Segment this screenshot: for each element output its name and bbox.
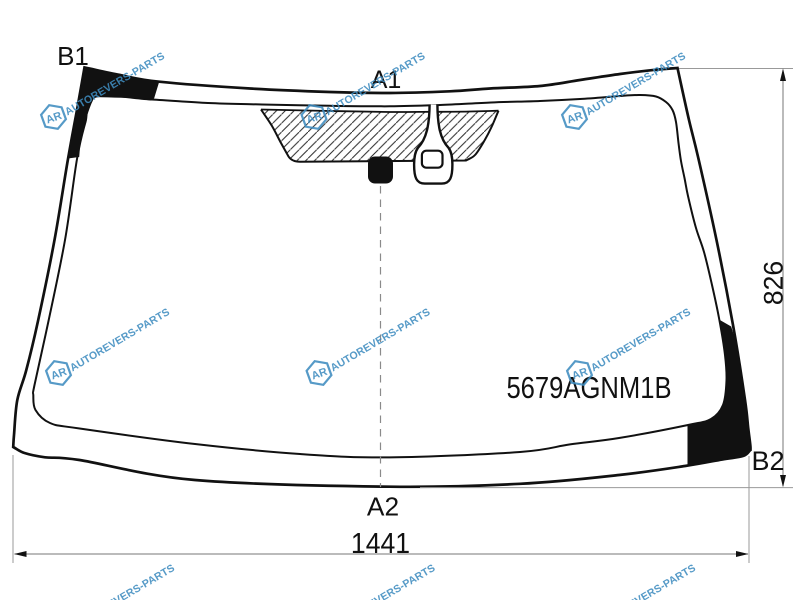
svg-text:1441: 1441 [351, 527, 410, 559]
svg-text:826: 826 [759, 261, 789, 305]
svg-text:B2: B2 [751, 446, 784, 476]
svg-text:B1: B1 [57, 41, 89, 71]
svg-text:A2: A2 [367, 492, 399, 522]
